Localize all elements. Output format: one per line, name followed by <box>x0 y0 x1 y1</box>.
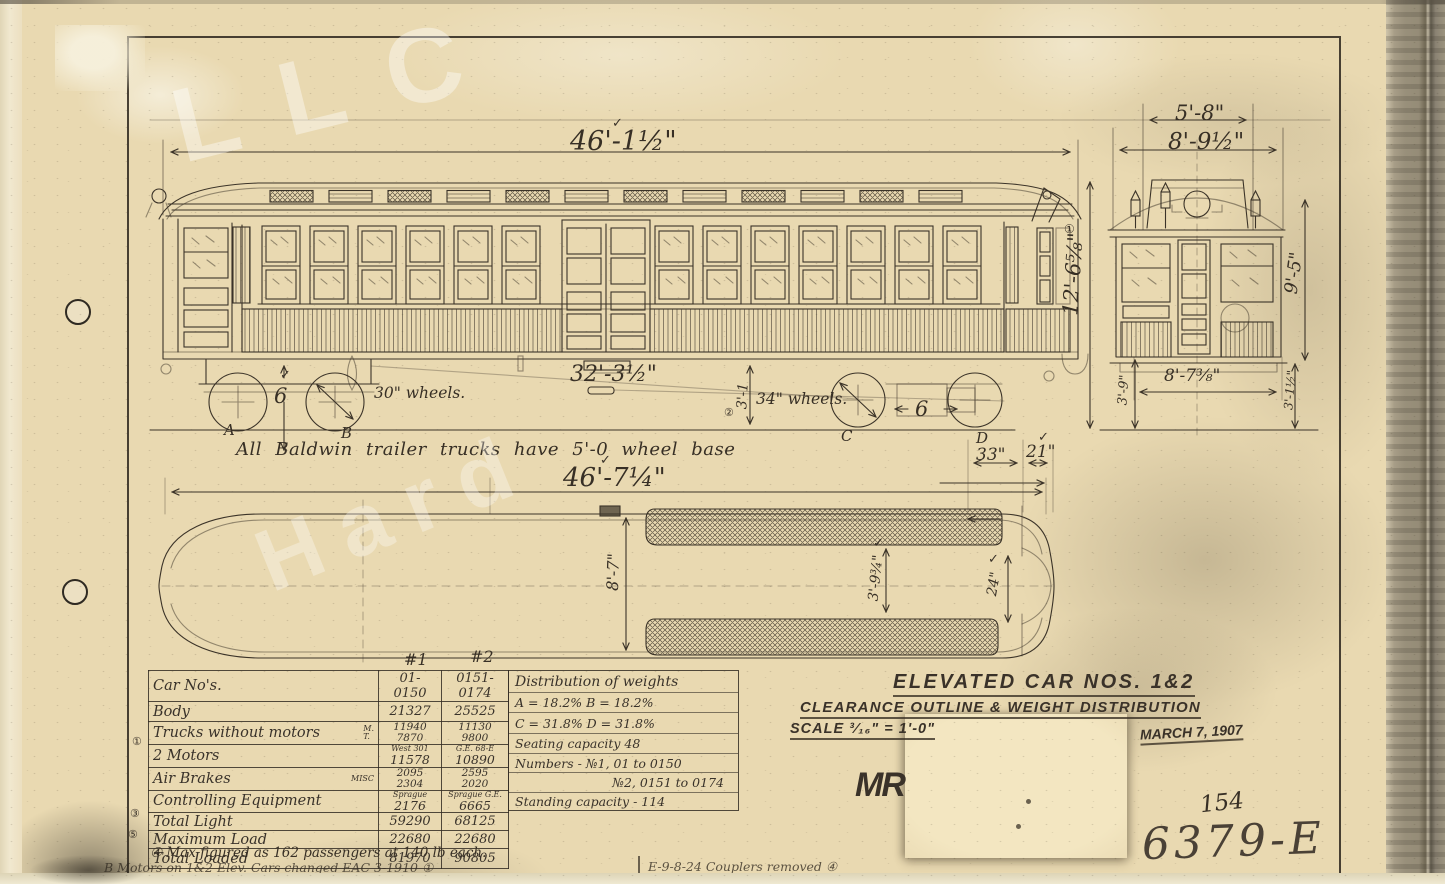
scan-edge-left <box>0 0 22 884</box>
drawing-border-frame <box>127 36 1341 875</box>
corner-smudge <box>30 850 160 884</box>
punch-hole <box>62 579 88 605</box>
scan-edge-bottom <box>0 873 1445 884</box>
scanned-drawing-page: 46'-1½" 5'-8" 8'-9½" 12'-6⅝" ① 9'-5" 32'… <box>0 0 1445 884</box>
scan-edge-top <box>0 0 1445 4</box>
paper-dogear <box>55 25 145 91</box>
scan-edge-right <box>1386 0 1445 884</box>
punch-hole <box>65 299 91 325</box>
